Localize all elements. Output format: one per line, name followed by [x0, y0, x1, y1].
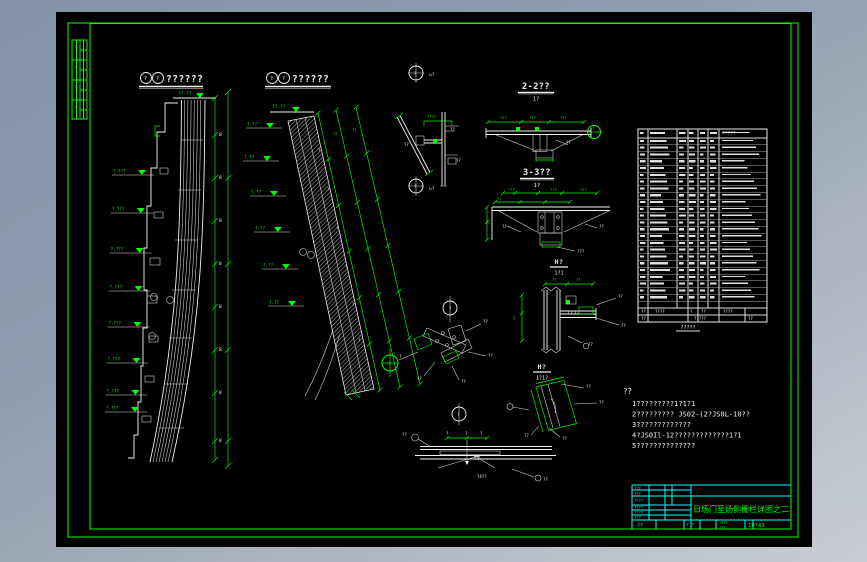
- table-cell-text: [640, 228, 645, 230]
- table-cell-text: [640, 160, 645, 162]
- table-cell-text: [722, 187, 757, 188]
- annotation-label: ??: [488, 353, 493, 358]
- title-block-cell: ???: [635, 486, 641, 490]
- detail-scale: 1?1: [554, 271, 563, 277]
- table-cell-text: [679, 140, 686, 142]
- detail-title: H?: [538, 363, 547, 371]
- level-triangle: [132, 358, 140, 363]
- table-cell-text: [710, 276, 716, 278]
- title-block-cell: ??: [637, 523, 643, 529]
- table-cell-text: [710, 160, 716, 162]
- annotation-label: ??: [599, 224, 604, 229]
- table-cell-text: [700, 153, 704, 155]
- note-line: 5??????????????: [632, 442, 695, 450]
- table-cell-text: [710, 201, 716, 203]
- annotation-label: 8: [219, 347, 222, 353]
- table-cell-text: [689, 181, 694, 183]
- dim-tick: [367, 341, 372, 346]
- section-title: 2-2??: [522, 82, 550, 92]
- annotation-label: 8: [219, 438, 222, 444]
- table-cell-text: [710, 255, 714, 257]
- level-label: ?.??: [255, 226, 266, 231]
- title-block-cell: ? ?: [686, 523, 694, 529]
- table-cell-text: [650, 215, 666, 217]
- annotation-label: ?: [414, 71, 417, 76]
- table-cell-text: [700, 262, 706, 264]
- table-cell-text: [722, 215, 752, 216]
- table-cell-text: [700, 276, 704, 278]
- table-cell-text: [650, 228, 669, 230]
- section-scale: 1?: [534, 183, 541, 189]
- title-block-cell: ????: [635, 511, 643, 515]
- table-cell-text: [700, 249, 705, 251]
- table-cell-text: [689, 262, 695, 264]
- title-block-cell: ????: [719, 521, 727, 525]
- drawing-title: 日场门至炀侧栅栏详图之二: [693, 504, 789, 514]
- table-cell-text: [689, 160, 696, 162]
- table-cell-text: [689, 208, 693, 210]
- table-cell-text: [710, 262, 715, 264]
- note-line: 4?JS0Il-12?????????????1?1: [632, 432, 742, 440]
- table-cell-text: [700, 167, 705, 169]
- view-b-elevation: [270, 107, 374, 400]
- table-cell-text: [700, 201, 704, 203]
- table-cell-text: [679, 167, 685, 169]
- summary-cell: ??: [641, 309, 646, 314]
- annotation-label: ?: [399, 354, 402, 360]
- level-label: ?.??: [251, 190, 262, 195]
- view-a-elevation: [128, 93, 216, 462]
- annotation-label: ?: [414, 184, 417, 189]
- table-cell-text: [689, 255, 694, 257]
- section-label-3-3: 3-3?? 1?: [520, 168, 554, 189]
- table-cell-text: [650, 208, 664, 210]
- table-cell-text: [679, 208, 685, 210]
- table-cell-text: [710, 221, 715, 223]
- table-cell-text: [640, 249, 643, 251]
- table-cell-text: [640, 147, 644, 149]
- annotation-label: ?: [480, 431, 483, 436]
- annotation-label: 8: [219, 175, 222, 181]
- annotation-label: ??: [386, 362, 390, 366]
- table-cell-text: [679, 181, 683, 183]
- table-cell-text: [700, 208, 705, 210]
- dim-tick: [355, 200, 360, 205]
- dim-tick: [375, 197, 380, 202]
- table-caption: ?????: [680, 325, 695, 331]
- table-cell-text: [722, 201, 746, 202]
- level-label: ?.???: [110, 285, 123, 290]
- note-line: 1?????????1?1?1: [632, 400, 695, 408]
- annotation-label: ???: [529, 115, 536, 120]
- view-heading-1: ??????: [139, 73, 203, 89]
- table-cell-text: [640, 174, 644, 176]
- view-g-detail: [507, 377, 597, 437]
- table-cell-text: [710, 174, 714, 176]
- cad-drawing: ?????? ??????: [56, 12, 812, 547]
- table-cell-text: [689, 296, 694, 298]
- view-heading-2: ??????: [265, 73, 331, 89]
- table-cell-text: [689, 194, 695, 196]
- table-cell-text: [722, 228, 758, 229]
- table-cell-text: [710, 242, 716, 244]
- table-cell-text: [722, 255, 753, 256]
- dim-tick: [387, 338, 392, 343]
- table-cell-text: [710, 208, 717, 210]
- table-cell-text: [700, 242, 704, 244]
- annotation-label: ??: [450, 127, 455, 132]
- view-title: ??????: [292, 74, 329, 85]
- level-triangle: [138, 170, 146, 175]
- summary-cell: ?????: [694, 316, 707, 321]
- summary-cell: ??: [641, 316, 646, 321]
- table-cell-text: [700, 228, 703, 230]
- summary-cell: ??: [701, 309, 706, 314]
- table-cell-text: [679, 255, 683, 257]
- table-cell-text: [650, 147, 668, 149]
- annotation-label: ??: [402, 432, 407, 437]
- table-cell-text: [689, 289, 694, 291]
- annotation-label: ??: [543, 477, 548, 482]
- table-cell-text: [722, 262, 756, 263]
- table-cell-text: [700, 181, 705, 183]
- table-cell-text: [679, 283, 685, 285]
- annotation-label: 8: [219, 218, 222, 224]
- view-title: ??????: [166, 74, 203, 85]
- table-cell-text: [700, 140, 705, 142]
- table-cell-text: [710, 167, 716, 169]
- table-cell-text: [700, 283, 705, 285]
- annotation-label: ?: [449, 306, 452, 311]
- table-cell-text: [640, 187, 645, 189]
- table-cell-text: [700, 296, 706, 298]
- annotation-label: ??: [588, 342, 593, 347]
- table-cell-text: [679, 187, 684, 189]
- annotation-label: ??: [599, 400, 604, 405]
- table-cell-text: [650, 167, 664, 169]
- table-cell-text: [650, 153, 670, 155]
- annotation-label: ?: [446, 431, 449, 436]
- drawing-frame: [68, 23, 798, 537]
- table-cell-text: [700, 174, 705, 176]
- dim-tick: [407, 335, 412, 340]
- annotation-label: ?4??: [477, 474, 487, 479]
- table-cell-text: [689, 242, 693, 244]
- note-line: 2????????? JS02-(2?JS0L-10??: [632, 411, 750, 419]
- table-cell-text: [700, 187, 706, 189]
- table-cell-text: [640, 153, 645, 155]
- level-triangle: [288, 301, 296, 306]
- annotation-label: ??: [512, 315, 517, 320]
- table-cell-text: [650, 296, 667, 298]
- level-triangle: [135, 286, 143, 291]
- table-cell-text: [700, 215, 705, 217]
- table-cell-text: [640, 201, 646, 203]
- table-cell-text: [650, 132, 665, 134]
- view-e-section: [485, 191, 610, 251]
- level-triangle: [274, 227, 282, 232]
- table-cell-text: [722, 174, 751, 175]
- table-cell-text: [722, 194, 760, 195]
- annotation-label: ??: [352, 127, 357, 132]
- detail-title: H?: [555, 258, 564, 266]
- annotation-label: ?: [282, 76, 285, 82]
- detail-scale: 1?1?: [536, 376, 548, 382]
- parts-table: ????? ?? ???? ? ?? ???? ?? ????? ?? ????…: [638, 129, 767, 331]
- annotation-label: ???: [508, 187, 515, 192]
- table-cell-text: [710, 249, 717, 251]
- annotation-label: 8: [219, 132, 222, 138]
- table-cell-text: [722, 235, 762, 236]
- table-cell-text: [722, 160, 744, 161]
- table-cell-text: [650, 194, 661, 196]
- level-label: ?.??: [244, 155, 255, 160]
- level-triangle: [137, 208, 145, 213]
- view-h-detail: [382, 296, 486, 380]
- annotation-label: ??: [456, 158, 461, 163]
- table-cell-text: [710, 289, 714, 291]
- table-cell-text: [679, 289, 686, 291]
- table-cell-text: [650, 276, 662, 278]
- annotation-label: ??.??: [178, 91, 192, 97]
- table-cell-text: [640, 181, 644, 183]
- dim-tick: [364, 151, 369, 156]
- table-cell-text: [710, 181, 714, 183]
- table-cell-text: [722, 249, 750, 250]
- level-triangle: [136, 248, 144, 253]
- table-cell-text: [679, 194, 684, 196]
- table-cell-text: [700, 160, 704, 162]
- level-label: ?.???: [112, 207, 125, 212]
- table-cell-text: [640, 262, 644, 264]
- table-cell-text: [710, 187, 715, 189]
- table-cell-text: [700, 194, 704, 196]
- table-cell-text: [710, 140, 714, 142]
- table-cell-text: [722, 147, 756, 148]
- dim-tick: [378, 388, 383, 393]
- dim-tick: [396, 289, 401, 294]
- level-label: ?.??: [269, 300, 280, 305]
- table-cell-text: [710, 153, 715, 155]
- annotation-label: ???: [577, 249, 585, 254]
- annotation-label: ??: [461, 379, 466, 384]
- table-cell-text: [700, 255, 705, 257]
- table-cell-text: [700, 235, 704, 237]
- table-cell-text: [650, 140, 666, 142]
- table-cell-text: [640, 235, 645, 237]
- dim-tick: [344, 154, 349, 159]
- title-block-cell: ???: [635, 516, 641, 520]
- annotation-label: ??: [621, 323, 626, 328]
- desktop-background: { "colors":{"line_green":"#00ff00","line…: [0, 0, 867, 562]
- table-cell-text: [710, 215, 714, 217]
- table-cell-text: [722, 276, 745, 277]
- table-cell-text: [640, 208, 643, 210]
- dim-tick: [376, 292, 381, 297]
- table-cell-text: [722, 140, 753, 141]
- level-label: ?.???: [107, 357, 120, 362]
- table-cell-text: [640, 221, 644, 223]
- dim-tick: [354, 105, 359, 110]
- table-cell-text: [640, 140, 644, 142]
- table-cell-text: [700, 289, 705, 291]
- dim-tick: [386, 243, 391, 248]
- detail-label-5: H? 1?1: [550, 258, 568, 277]
- dim-tick: [316, 111, 321, 116]
- table-cell-text: [689, 269, 695, 271]
- annotation-label: ???: [580, 187, 587, 192]
- table-cell-text: [689, 249, 693, 251]
- section-label-2-2: 2-2?? 1?: [518, 82, 554, 103]
- annotation-label: ??: [576, 277, 581, 282]
- table-cell-text: [710, 228, 715, 230]
- table-cell-text: [650, 242, 663, 244]
- table-cell-text: [679, 221, 683, 223]
- note-line: 3?????????????: [632, 421, 691, 429]
- summary-cell: ????: [723, 309, 733, 314]
- table-cell-text: [640, 269, 645, 271]
- summary-cell: ??: [748, 316, 753, 321]
- table-cell-text: [689, 215, 694, 217]
- summary-cell: ?: [690, 309, 693, 314]
- level-label: ?.???: [113, 169, 126, 174]
- table-cell-text: [722, 242, 747, 243]
- table-cell-text: [722, 167, 748, 168]
- table-cell-text: [722, 181, 754, 182]
- table-cell-text: [689, 276, 696, 278]
- table-cell-text: [689, 201, 696, 203]
- table-cell-text: [650, 174, 665, 176]
- annotation-label: ??: [502, 224, 507, 229]
- dim-tick: [334, 108, 339, 113]
- detail-label-6: H? 1?1?: [533, 363, 551, 382]
- table-cell-text: [679, 235, 684, 237]
- table-cell-text: [722, 221, 755, 222]
- table-cell-text: [679, 296, 683, 298]
- annotation-label: ??: [618, 294, 623, 299]
- annotation-label: ??: [552, 277, 557, 282]
- annotation-label: ??: [404, 142, 409, 147]
- annotation-label: ?: [457, 412, 460, 417]
- level-label: ?.???: [108, 321, 121, 326]
- table-cell-text: [689, 140, 694, 142]
- table-cell-text: [679, 262, 683, 264]
- dim-tick: [336, 203, 341, 208]
- level-label: ?.??: [247, 122, 258, 127]
- table-cell-text: [650, 235, 662, 237]
- annotation-label: ???: [560, 115, 567, 120]
- dim-tick: [357, 295, 362, 300]
- annotation-label: ??: [333, 131, 338, 136]
- table-cell-text: [710, 147, 715, 149]
- table-cell-text: [722, 296, 754, 297]
- table-header-note: ?????: [722, 131, 736, 137]
- table-cell-text: [650, 255, 667, 257]
- table-cell-text: [679, 147, 683, 149]
- table-cell-text: [689, 174, 694, 176]
- cad-canvas[interactable]: ?????? ??????: [56, 12, 812, 547]
- table-cell-text: [679, 215, 686, 217]
- table-cell-text: [710, 269, 715, 271]
- table-cell-text: [689, 221, 694, 223]
- annotation-label: ?: [592, 126, 595, 131]
- table-cell-text: [689, 283, 693, 285]
- annotation-label: ??: [483, 319, 488, 324]
- annotation-label: ???: [500, 115, 507, 120]
- annotation-label: 8: [219, 261, 222, 267]
- level-triangle: [282, 264, 290, 269]
- table-cell-text: [650, 262, 668, 264]
- table-cell-text: [650, 201, 663, 203]
- annotation-label: ??: [562, 436, 567, 441]
- table-cell-text: [710, 194, 716, 196]
- dim-tick: [366, 246, 371, 251]
- table-cell-text: [650, 187, 669, 189]
- table-cell-text: [722, 269, 760, 270]
- annotation-label: ??: [524, 433, 529, 438]
- dim-tick: [347, 249, 352, 254]
- annotation-label: ??: [497, 196, 502, 201]
- table-cell-text: [650, 181, 667, 183]
- table-cell-text: [650, 160, 662, 162]
- table-cell-text: [689, 228, 695, 230]
- table-cell-text: [710, 132, 717, 134]
- table-cell-text: [640, 242, 646, 244]
- table-cell-text: [679, 132, 685, 134]
- level-triangle: [270, 191, 278, 196]
- summary-cell: ????: [655, 309, 665, 314]
- table-cell-text: [700, 269, 704, 271]
- table-cell-text: [650, 221, 668, 223]
- table-cell-text: [689, 187, 695, 189]
- table-cell-text: [640, 289, 644, 291]
- annotation-label: ?: [156, 76, 159, 82]
- level-label: ?.???: [111, 247, 124, 252]
- table-cell-text: [650, 289, 666, 291]
- annotation-label: u?: [429, 186, 435, 192]
- drawing-date: 19?43: [748, 523, 765, 529]
- table-cell-text: [689, 132, 693, 134]
- table-cell-text: [650, 283, 664, 285]
- table-cell-text: [689, 147, 695, 149]
- section-title: 3-3??: [523, 168, 551, 178]
- title-block-cell: ???: [635, 492, 641, 496]
- table-cell-text: [640, 167, 646, 169]
- table-cell-text: [640, 215, 644, 217]
- title-block: ??? ??? ???? ???? ???? ??? 日场门至炀侧栅栏详图之二 …: [632, 485, 791, 530]
- table-cell-text: [722, 289, 751, 290]
- table-cell-text: [710, 235, 716, 237]
- view-i-detail: [412, 403, 557, 481]
- level-triangle: [133, 322, 141, 327]
- table-cell-text: [650, 269, 670, 271]
- annotation-label: ??: [566, 140, 571, 145]
- level-triangle: [266, 123, 274, 128]
- table-rows: [638, 132, 767, 301]
- table-cell-text: [722, 153, 759, 154]
- annotation-labels: ??.??88888888??.????????????u?u?????????…: [74, 45, 626, 482]
- annotation-label: 8: [219, 304, 222, 310]
- table-cell-text: [640, 132, 643, 134]
- dim-tick: [326, 157, 331, 162]
- table-cell-text: [679, 242, 685, 244]
- level-triangle: [263, 156, 271, 161]
- table-cell-text: [689, 167, 693, 169]
- view-f-detail: [520, 282, 619, 353]
- annotation-label: ??: [586, 384, 591, 389]
- section-scale: 1?: [533, 97, 540, 103]
- level-label: ?.???: [106, 389, 119, 394]
